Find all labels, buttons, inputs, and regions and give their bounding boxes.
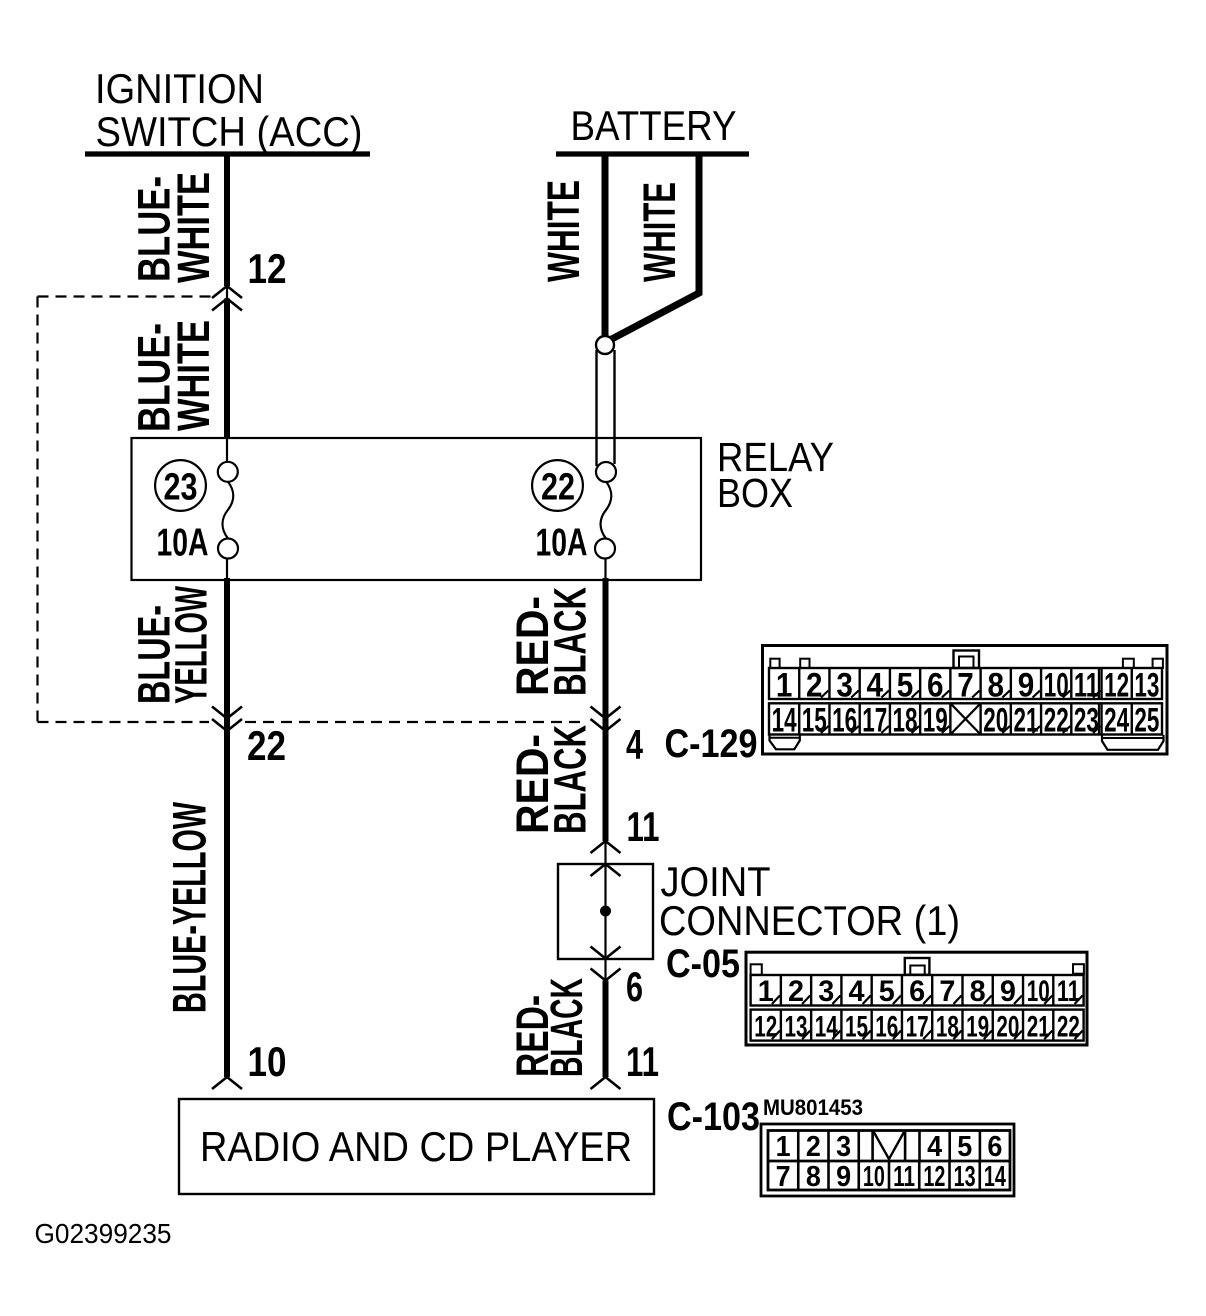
svg-text:21: 21 — [1027, 1011, 1050, 1044]
svg-text:14: 14 — [984, 1161, 1006, 1193]
svg-text:4: 4 — [626, 721, 643, 768]
svg-text:3: 3 — [836, 1131, 851, 1163]
svg-text:13: 13 — [954, 1161, 976, 1193]
svg-text:3: 3 — [836, 667, 853, 705]
svg-text:BATTERY: BATTERY — [571, 102, 737, 149]
svg-text:RADIO AND CD PLAYER: RADIO AND CD PLAYER — [200, 1123, 632, 1170]
svg-text:2: 2 — [788, 975, 804, 1008]
svg-text:23: 23 — [1074, 702, 1099, 740]
svg-text:C-103: C-103 — [667, 1095, 760, 1139]
svg-text:11: 11 — [893, 1161, 915, 1193]
svg-text:22: 22 — [1044, 702, 1069, 740]
svg-text:12: 12 — [1104, 667, 1129, 705]
svg-text:1: 1 — [776, 1131, 791, 1163]
svg-text:22: 22 — [1057, 1011, 1080, 1044]
svg-text:9: 9 — [1018, 667, 1035, 705]
svg-text:5: 5 — [957, 1131, 972, 1163]
svg-text:5: 5 — [879, 975, 895, 1008]
svg-text:22: 22 — [247, 722, 286, 769]
svg-text:16: 16 — [875, 1011, 898, 1044]
svg-text:11: 11 — [1074, 667, 1099, 705]
svg-text:WHITE: WHITE — [168, 172, 219, 283]
svg-text:6: 6 — [927, 667, 944, 705]
svg-text:22: 22 — [541, 467, 575, 509]
svg-text:BLACK: BLACK — [541, 978, 592, 1077]
svg-text:21: 21 — [1014, 702, 1039, 740]
svg-text:7: 7 — [939, 975, 955, 1008]
svg-text:11: 11 — [627, 803, 660, 850]
svg-text:BLACK: BLACK — [545, 587, 596, 696]
svg-text:IGNITION: IGNITION — [95, 65, 264, 112]
svg-text:8: 8 — [987, 667, 1004, 705]
svg-text:13: 13 — [1134, 667, 1159, 705]
svg-text:1: 1 — [758, 975, 774, 1008]
svg-text:WHITE: WHITE — [168, 320, 219, 431]
svg-text:7: 7 — [957, 667, 974, 705]
svg-text:6: 6 — [626, 963, 643, 1010]
svg-text:15: 15 — [802, 702, 827, 740]
svg-text:15: 15 — [845, 1011, 868, 1044]
svg-text:BLACK: BLACK — [545, 725, 596, 834]
svg-text:7: 7 — [776, 1161, 791, 1193]
svg-text:20: 20 — [983, 702, 1008, 740]
svg-text:11: 11 — [626, 1038, 659, 1085]
svg-text:20: 20 — [996, 1011, 1019, 1044]
svg-text:10A: 10A — [157, 522, 209, 565]
svg-text:18: 18 — [893, 702, 918, 740]
svg-text:3: 3 — [818, 975, 834, 1008]
svg-text:17: 17 — [862, 702, 887, 740]
svg-text:16: 16 — [832, 702, 857, 740]
svg-text:BLUE-YELLOW: BLUE-YELLOW — [163, 802, 216, 1013]
svg-text:23: 23 — [164, 467, 198, 509]
svg-text:18: 18 — [936, 1011, 959, 1044]
svg-text:C-05: C-05 — [666, 942, 740, 986]
svg-text:2: 2 — [806, 667, 823, 705]
svg-text:17: 17 — [906, 1011, 929, 1044]
svg-text:WHITE: WHITE — [538, 180, 589, 282]
svg-text:13: 13 — [785, 1011, 808, 1044]
svg-text:10A: 10A — [536, 522, 588, 565]
svg-text:10: 10 — [863, 1161, 885, 1193]
svg-text:10: 10 — [1027, 975, 1050, 1008]
svg-text:WHITE: WHITE — [634, 182, 685, 282]
svg-text:9: 9 — [1000, 975, 1016, 1008]
svg-text:12: 12 — [754, 1011, 777, 1044]
svg-text:2: 2 — [806, 1131, 821, 1163]
svg-text:G02399235: G02399235 — [35, 1218, 172, 1249]
svg-text:10: 10 — [248, 1038, 287, 1085]
svg-text:10: 10 — [1044, 667, 1069, 705]
svg-text:14: 14 — [772, 702, 797, 740]
svg-text:4: 4 — [849, 975, 865, 1008]
svg-text:24: 24 — [1104, 702, 1129, 740]
svg-text:6: 6 — [909, 975, 925, 1008]
svg-text:CONNECTOR (1): CONNECTOR (1) — [659, 897, 960, 944]
svg-text:9: 9 — [836, 1161, 851, 1193]
svg-text:25: 25 — [1134, 702, 1159, 740]
svg-text:12: 12 — [248, 245, 287, 292]
svg-text:8: 8 — [970, 975, 986, 1008]
svg-text:5: 5 — [897, 667, 914, 705]
svg-text:8: 8 — [806, 1161, 821, 1193]
svg-text:YELLOW: YELLOW — [166, 586, 217, 704]
svg-text:6: 6 — [987, 1131, 1002, 1163]
svg-text:1: 1 — [776, 667, 793, 705]
svg-text:MU801453: MU801453 — [763, 1095, 863, 1120]
svg-text:4: 4 — [927, 1131, 942, 1163]
svg-text:BOX: BOX — [717, 470, 793, 516]
svg-text:11: 11 — [1057, 975, 1080, 1008]
svg-text:14: 14 — [815, 1011, 838, 1044]
svg-text:19: 19 — [966, 1011, 989, 1044]
svg-text:SWITCH (ACC): SWITCH (ACC) — [96, 108, 363, 155]
svg-text:C-129: C-129 — [665, 722, 758, 766]
svg-text:12: 12 — [923, 1161, 945, 1193]
svg-text:19: 19 — [923, 702, 948, 740]
svg-text:4: 4 — [867, 667, 884, 705]
